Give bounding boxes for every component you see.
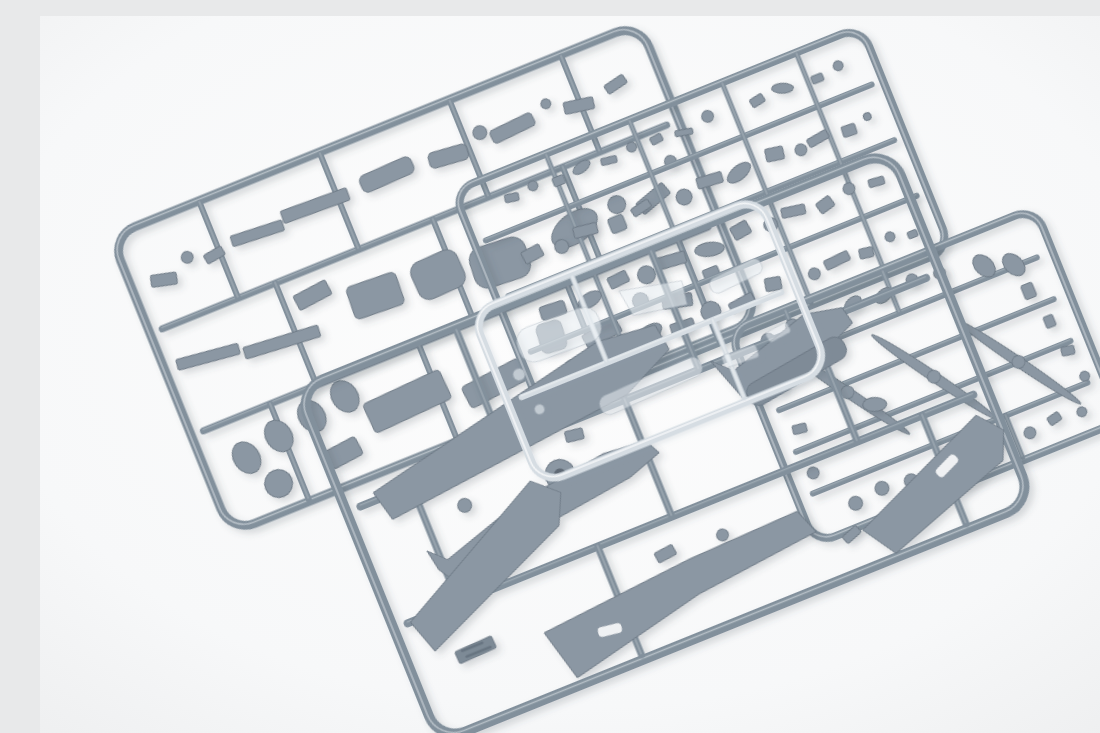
model-kit-sprues-photo: Overhead photograph of an aircraft plast…: [40, 16, 1100, 733]
sprues-scene-canvas: [40, 16, 1100, 733]
